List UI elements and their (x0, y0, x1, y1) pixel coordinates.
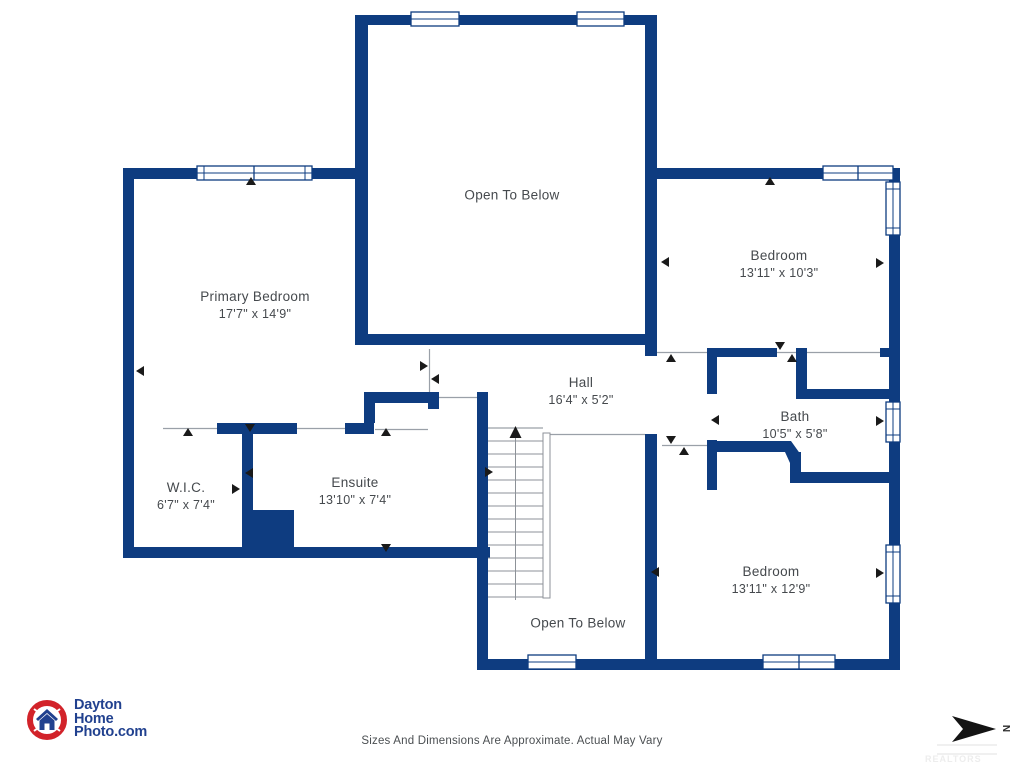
floorplan-drawing (0, 0, 1024, 768)
floorplan-page: Open To Below Primary Bedroom 17'7" x 14… (0, 0, 1024, 768)
stairs (488, 428, 550, 600)
disclaimer-text: Sizes And Dimensions Are Approximate. Ac… (0, 735, 1024, 747)
room-label-ensuite: Ensuite 13'10" x 7'4" (319, 475, 391, 507)
north-arrow-icon (950, 714, 998, 744)
room-name: Open To Below (464, 188, 559, 203)
dayton-home-photo-logo: Dayton Home Photo.com (26, 699, 147, 741)
logo-wordmark: Dayton Home Photo.com (74, 699, 147, 740)
room-label-bedroom-lower: Bedroom 13'11" x 12'9" (732, 564, 811, 596)
room-name: Bath (762, 409, 827, 424)
room-label-primary-bedroom: Primary Bedroom 17'7" x 14'9" (200, 289, 310, 321)
room-name: W.I.C. (157, 480, 215, 495)
room-name: Ensuite (319, 475, 391, 490)
room-name: Open To Below (530, 616, 625, 631)
logo-line-3: Photo.com (74, 726, 147, 740)
room-dimensions: 6'7" x 7'4" (157, 498, 215, 512)
room-label-bedroom-upper: Bedroom 13'11" x 10'3" (740, 248, 819, 280)
room-label-bath: Bath 10'5" x 5'8" (762, 409, 827, 441)
watermark-text: REALTORS (925, 754, 982, 764)
room-name: Bedroom (740, 248, 819, 263)
room-label-wic: W.I.C. 6'7" x 7'4" (157, 480, 215, 512)
room-name: Hall (548, 375, 613, 390)
room-dimensions: 13'11" x 12'9" (732, 582, 811, 596)
room-label-open-to-below-bottom: Open To Below (530, 616, 625, 631)
compass-north-label: N (1000, 725, 1011, 732)
logo-house-icon (26, 699, 68, 741)
room-name: Primary Bedroom (200, 289, 310, 304)
room-dimensions: 13'11" x 10'3" (740, 266, 819, 280)
room-label-open-to-below-top: Open To Below (464, 188, 559, 203)
room-dimensions: 13'10" x 7'4" (319, 493, 391, 507)
room-dimensions: 16'4" x 5'2" (548, 393, 613, 407)
realtors-watermark: REALTORS (925, 744, 1020, 764)
room-name: Bedroom (732, 564, 811, 579)
room-dimensions: 10'5" x 5'8" (762, 427, 827, 441)
room-dimensions: 17'7" x 14'9" (200, 307, 310, 321)
room-label-hall: Hall 16'4" x 5'2" (548, 375, 613, 407)
